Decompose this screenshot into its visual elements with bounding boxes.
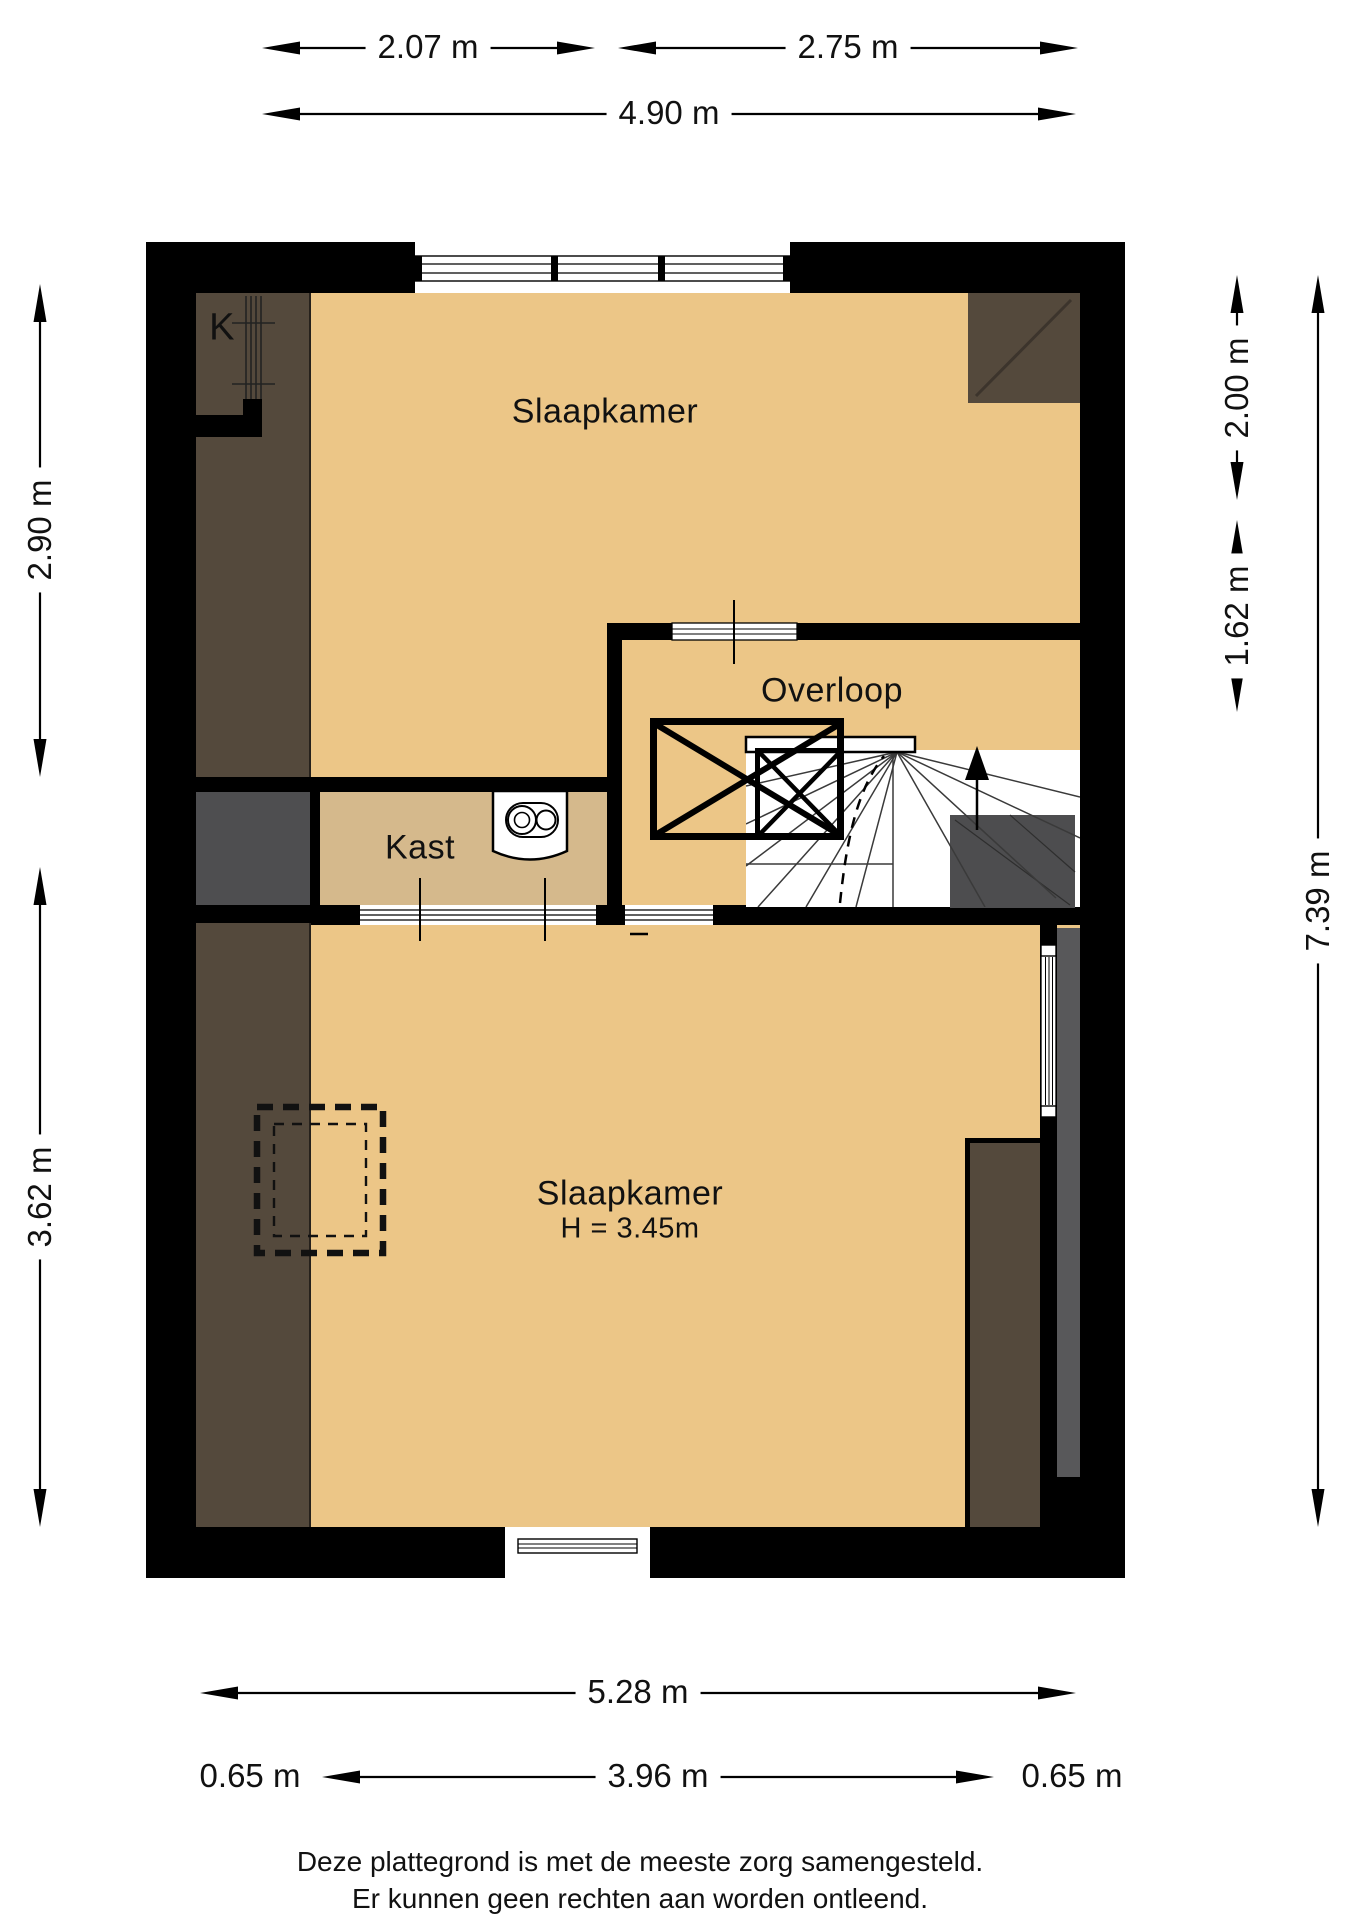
mechanical-unit-icon — [493, 791, 567, 860]
bedroom-bottom-height-label: H = 3.45m — [560, 1213, 699, 1246]
stair-lower-flight-gray — [950, 815, 1075, 908]
dim-right-total: 7.39 m — [1299, 839, 1337, 964]
bedroom-bottom-label: Slaapkamer — [537, 1175, 723, 1214]
closet-label: Kast — [385, 829, 455, 868]
floorplan: K Slaapkamer Overloop Kast Slaapkamer H … — [0, 0, 1358, 1920]
dim-top-total: 4.90 m — [607, 94, 732, 132]
dim-right-2: 1.62 m — [1218, 554, 1256, 679]
disclaimer-line-1: Deze plattegrond is met de meeste zorg s… — [297, 1846, 983, 1878]
landing-door-opening — [625, 905, 713, 934]
dim-top-1: 2.07 m — [366, 28, 491, 66]
flue-pipe — [232, 296, 275, 407]
dim-bottom-total: 5.28 m — [576, 1673, 701, 1711]
k-niche-wall — [196, 399, 262, 437]
dim-left-2: 3.62 m — [21, 1135, 59, 1260]
disclaimer-line-2: Er kunnen geen rechten aan worden ontlee… — [352, 1883, 928, 1915]
dim-left-1: 2.90 m — [21, 468, 59, 593]
skylight-dashed-rect — [257, 1107, 383, 1253]
dim-right-1: 2.00 m — [1218, 326, 1256, 451]
flue-label: K — [209, 307, 235, 350]
staircase — [654, 722, 1081, 909]
dim-bottom-left: 0.65 m — [188, 1757, 313, 1795]
closet-door-opening — [353, 878, 603, 941]
top-window — [415, 242, 790, 293]
right-window — [1041, 945, 1056, 1117]
sloped-square-diagonal — [976, 300, 1071, 396]
bedroom-top-label: Slaapkamer — [512, 393, 698, 432]
dim-bottom-middle: 3.96 m — [596, 1757, 721, 1795]
dim-bottom-right: 0.65 m — [1010, 1757, 1135, 1795]
plan-linework — [0, 0, 1358, 1920]
landing-window — [672, 600, 797, 664]
landing-label: Overloop — [761, 672, 903, 711]
dim-top-2: 2.75 m — [786, 28, 911, 66]
bottom-window — [505, 1527, 650, 1578]
